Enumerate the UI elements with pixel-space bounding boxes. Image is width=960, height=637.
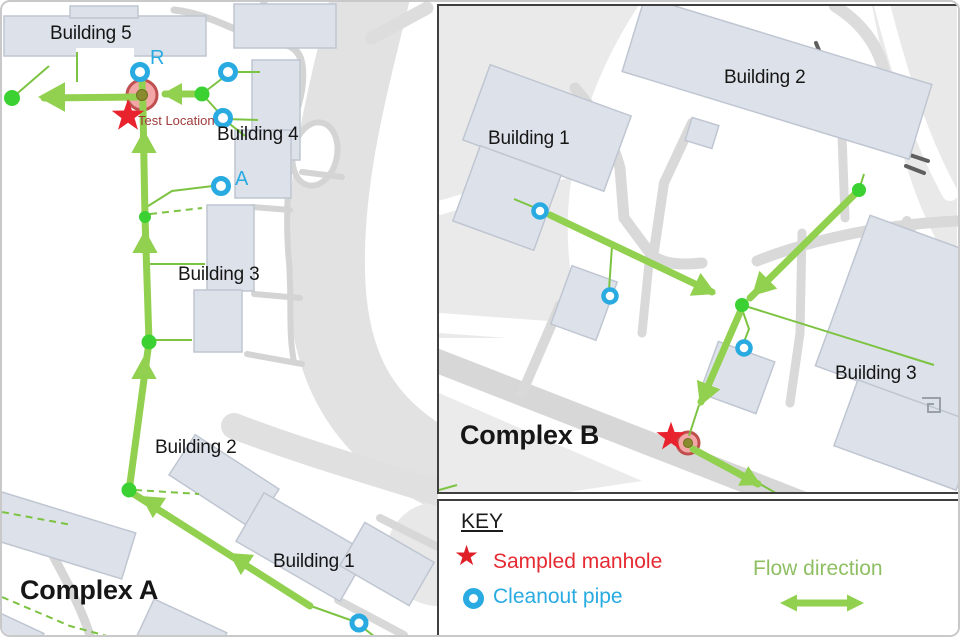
key-label-sampled-manhole: Sampled manhole: [493, 550, 662, 574]
cleanout-label-r: R: [150, 48, 164, 69]
building-label: Building 4: [217, 125, 298, 145]
sampled-manhole-star-icon: ★: [454, 542, 479, 570]
figure-canvas: Building 5 R Building 4 Test Location A …: [0, 0, 960, 637]
key-label-flow-direction: Flow direction: [753, 557, 883, 581]
building-label: Building 3: [178, 265, 259, 285]
panel-title-complex-b: Complex B: [460, 421, 599, 449]
junction-dots-a: [4, 87, 210, 498]
key-label-cleanout-pipe: Cleanout pipe: [493, 585, 623, 609]
test-location-label: Test Location: [138, 114, 215, 128]
manhole-center-b: [684, 439, 693, 448]
complex-a-map-svg: [2, 2, 438, 637]
cleanout-pipe-icon: [463, 588, 484, 609]
manhole-center-a: [137, 90, 148, 101]
panel-title-complex-a: Complex A: [20, 576, 158, 604]
building-label: Building 5: [50, 24, 131, 44]
cleanout-label-a: A: [235, 169, 248, 190]
key-title: KEY: [461, 510, 503, 534]
building-label: Building 3: [835, 364, 916, 384]
flow-direction-arrow-icon: [780, 592, 864, 614]
building-label: Building 2: [724, 68, 805, 88]
building-label: Building 1: [273, 552, 354, 572]
complex-a-map-panel: [2, 2, 438, 637]
building-label: Building 2: [155, 438, 236, 458]
building-label: Building 1: [488, 129, 569, 149]
complex-b-buildings: [453, 6, 958, 490]
